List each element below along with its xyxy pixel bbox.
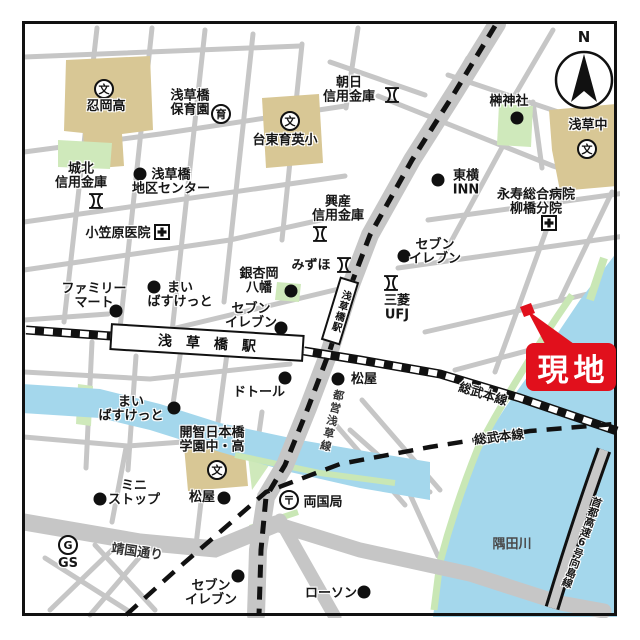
poi-label-ryogoku-post: 両国局 — [303, 496, 342, 510]
map-margin-bottom — [0, 618, 640, 640]
poi-label-hoikuen: 浅草橋 保育園 — [170, 90, 209, 119]
nursery-icon: 育 — [211, 104, 231, 124]
school-icon: 文 — [207, 460, 227, 480]
poi-label-ginnanoka-hachiman: 銀杏岡 八幡 — [239, 268, 278, 297]
poi-dot — [511, 112, 524, 125]
map-margin-top — [0, 0, 640, 21]
compass-north-label: N — [578, 29, 591, 46]
poi-label-asahi-shinkin: 朝日 信用金庫 — [323, 77, 375, 106]
poi-label-family-mart: ファミリー マート — [61, 283, 126, 312]
school-icon: 文 — [280, 111, 300, 131]
bank-icon — [336, 257, 353, 278]
bank-icon — [384, 87, 401, 108]
bank-icon — [312, 226, 329, 247]
poi-label-lawson: ローソン — [305, 587, 357, 601]
poi-label-oshioka-high: 忍岡高 — [86, 100, 125, 114]
poi-dot — [285, 285, 298, 298]
jr-station-label: 浅草橋駅 — [144, 329, 271, 357]
poi-label-maibasket-south: まい ばすけっと — [98, 396, 163, 425]
poi-dot — [218, 492, 231, 505]
poi-label-gas-station: GS — [58, 557, 78, 571]
poi-label-toyoko-inn: 東横 INN — [453, 170, 480, 199]
poi-label-taito-ikuei: 台東育英小 — [252, 134, 317, 148]
school-icon: 文 — [94, 79, 114, 99]
hospital-icon — [154, 224, 170, 244]
bank-icon — [383, 275, 400, 296]
poi-label-mufg: 三菱 UFJ — [384, 295, 410, 324]
poi-label-eiju-hospital: 永寿総合病院 柳橋分院 — [497, 189, 575, 218]
poi-label-kosan-shinkin: 興産 信用金庫 — [312, 196, 364, 225]
poi-label-johoku-shinkin: 城北 信用金庫 — [55, 163, 107, 192]
poi-label-chiku-center: 浅草橋 地区センター — [132, 169, 210, 198]
poi-label-sakaki-shrine: 榊神社 — [489, 95, 528, 109]
map-margin-left — [0, 0, 22, 640]
map-canvas: 浅草橋駅 浅草橋駅 現地 N 文 文 文 文 育 〒 G 忍岡高 浅草橋 保育園… — [0, 0, 640, 640]
sumida-river-label: 隅田川 — [492, 538, 531, 552]
post-office-icon: 〒 — [279, 490, 299, 510]
map-margin-right — [620, 0, 640, 640]
poi-label-matsuya-south: 松屋 — [189, 491, 215, 505]
hospital-icon — [541, 215, 557, 235]
poi-label-asakusa-jhs: 浅草中 — [568, 119, 607, 133]
poi-dot — [432, 174, 445, 187]
compass-icon — [556, 52, 612, 108]
site-location-badge: 現地 — [526, 343, 616, 391]
poi-dot — [358, 586, 371, 599]
poi-label-mizuho: みずほ — [291, 259, 330, 273]
poi-label-doutor: ドトール — [233, 386, 285, 400]
poi-dot — [279, 372, 292, 385]
poi-dot — [168, 402, 181, 415]
poi-label-seven-eleven-north: セブン イレブン — [409, 239, 461, 268]
poi-label-ogasawara-clinic: 小笠原医院 — [85, 227, 150, 241]
poi-label-kaichi-school: 開智日本橋 学園中・高 — [179, 427, 244, 456]
poi-label-maibasket-north: まい ばすけっと — [147, 282, 212, 311]
school-icon: 文 — [577, 139, 597, 159]
poi-label-seven-eleven-west: セブン イレブン — [225, 303, 277, 332]
gas-station-icon: G — [58, 535, 78, 555]
poi-label-seven-eleven-south: セブン イレブン — [185, 580, 237, 609]
bank-icon — [88, 193, 105, 214]
poi-dot — [332, 373, 345, 386]
poi-dot — [94, 493, 107, 506]
poi-label-matsuya-center: 松屋 — [351, 373, 377, 387]
poi-label-ministop: ミニ ストップ — [108, 480, 160, 509]
